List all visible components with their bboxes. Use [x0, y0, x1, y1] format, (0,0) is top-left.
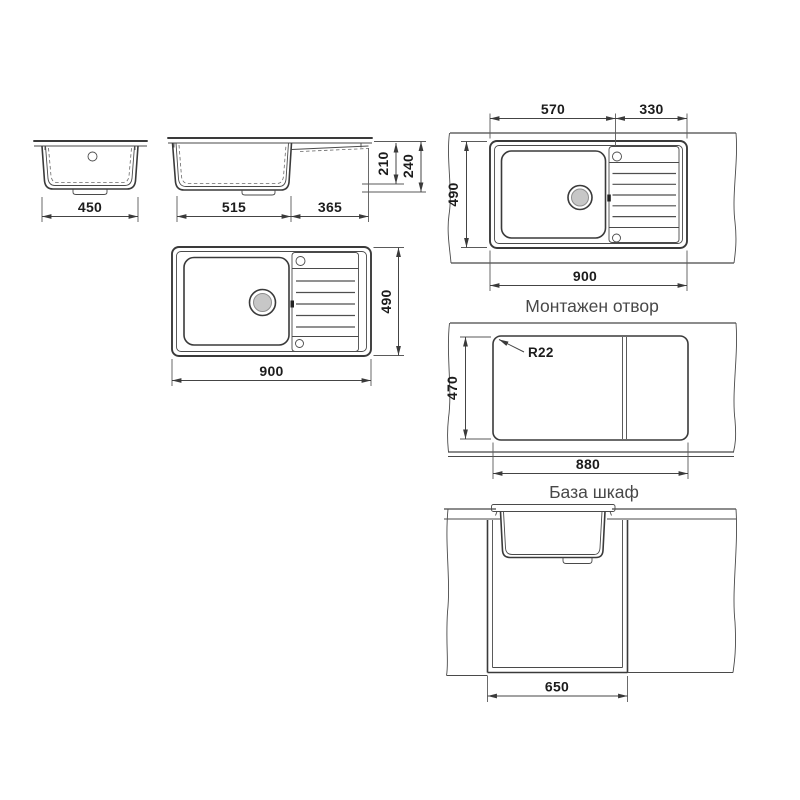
bowl-hidden-line: [179, 145, 286, 184]
sink-flange: [492, 505, 616, 512]
tap-hole-circle: [613, 234, 621, 242]
bowl-outer-wall: [173, 143, 292, 190]
overflow-hole-circle: [88, 152, 97, 161]
drainboard-grooves: [613, 174, 677, 217]
rim-clip-ticks: [174, 143, 361, 148]
dim-210: 210: [375, 151, 391, 175]
dim-900: 900: [259, 363, 283, 379]
caption-base-cabinet: База шкаф: [549, 482, 639, 502]
cutout-view: R22 470 880 База шкаф: [444, 323, 737, 502]
dim-r22: R22: [528, 345, 554, 360]
dim-330: 330: [639, 101, 663, 117]
groove-mark: [607, 195, 611, 202]
bowl-inner-wall: [46, 146, 135, 186]
sink-technical-drawing-page: 450 515 365 210 240: [0, 0, 800, 800]
bowl-front-view: 450: [34, 141, 147, 222]
drain-cap: [254, 294, 272, 312]
dim-570: 570: [541, 101, 565, 117]
countertop-break-line-right: [734, 323, 737, 452]
dim-900: 900: [573, 268, 597, 284]
dim-490: 490: [445, 182, 461, 206]
mounting-plan-view: 570 330 490 900 Монтажен отвор: [445, 101, 737, 316]
cutout-joint-lines: [623, 337, 627, 439]
dim-490: 490: [378, 289, 394, 313]
panel-break-line-left: [447, 509, 488, 676]
bowl-inner-wall: [176, 143, 289, 187]
tap-hole-circle: [613, 152, 622, 161]
bowl-outer-wall: [501, 512, 606, 558]
flange-clip-ticks: [496, 512, 612, 516]
dim-650: 650: [545, 679, 569, 695]
drain-bump: [73, 190, 107, 195]
cabinet-outer-walls: [488, 520, 628, 673]
dim-880: 880: [576, 456, 600, 472]
extension-lines: [460, 337, 688, 479]
tap-hole-circle: [296, 340, 304, 348]
plan-view: 900 490: [172, 247, 404, 386]
tap-hole-circle: [296, 257, 305, 266]
side-section-view: 515 365 210 240: [168, 138, 426, 222]
panel-break-line-right: [628, 509, 737, 673]
groove-mark: [291, 301, 295, 308]
bowl-outline: [184, 258, 289, 346]
countertop-break-line-right: [734, 133, 737, 263]
technical-drawing: 450 515 365 210 240: [0, 0, 800, 800]
drain-cap: [572, 189, 589, 206]
drainboard-grooves: [296, 281, 355, 327]
dim-470: 470: [444, 376, 460, 400]
drainboard-separators: [292, 269, 359, 337]
dim-365: 365: [318, 199, 342, 215]
dim-450: 450: [78, 199, 102, 215]
dim-515: 515: [222, 199, 246, 215]
extension-lines: [172, 248, 404, 387]
rim-clip-ticks: [45, 146, 135, 150]
bowl-inner-wall: [504, 512, 603, 555]
drain-bump: [563, 558, 592, 564]
cabinet-section-view: 650: [444, 505, 737, 703]
bowl-outline: [502, 151, 606, 238]
dim-240: 240: [400, 154, 416, 178]
radius-leader-line: [499, 340, 524, 353]
caption-mounting-hole: Монтажен отвор: [525, 296, 659, 316]
